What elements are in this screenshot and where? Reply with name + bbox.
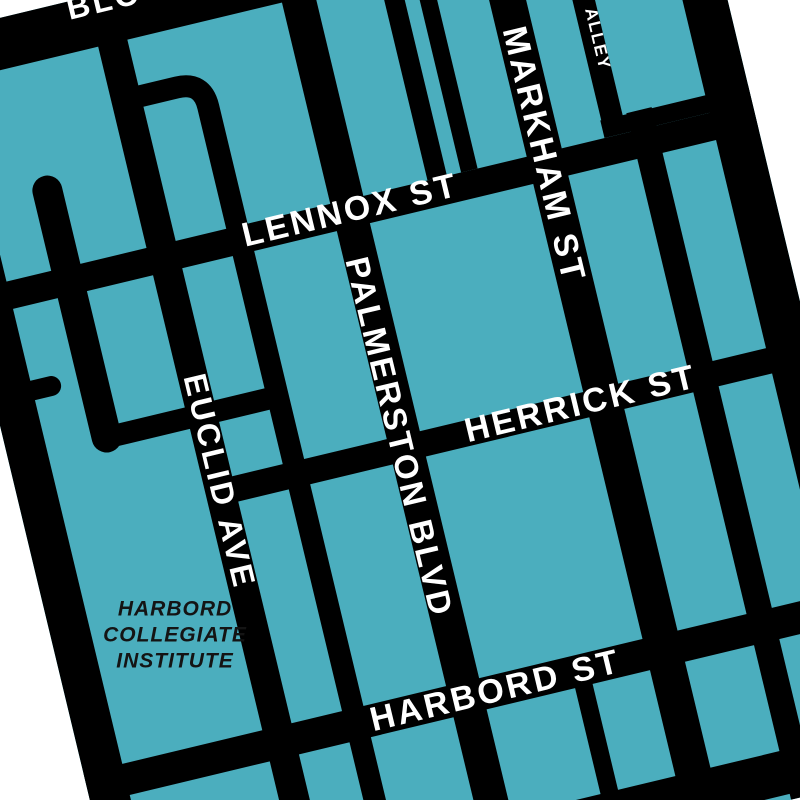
poi-label-line-3: INSTITUTE <box>116 649 234 672</box>
map-grid: BLOOR ST LENNOX ST MARKHAM ST ALLEY PALM… <box>0 0 800 800</box>
poi-harbord-collegiate-institute: HARBORD COLLEGIATE INSTITUTE <box>103 597 247 672</box>
poi-label-line-1: HARBORD <box>118 597 232 620</box>
poi-label-line-2: COLLEGIATE <box>103 623 247 646</box>
map-canvas: BLOOR ST LENNOX ST MARKHAM ST ALLEY PALM… <box>0 0 800 800</box>
map-print: BLOOR ST LENNOX ST MARKHAM ST ALLEY PALM… <box>0 0 800 800</box>
